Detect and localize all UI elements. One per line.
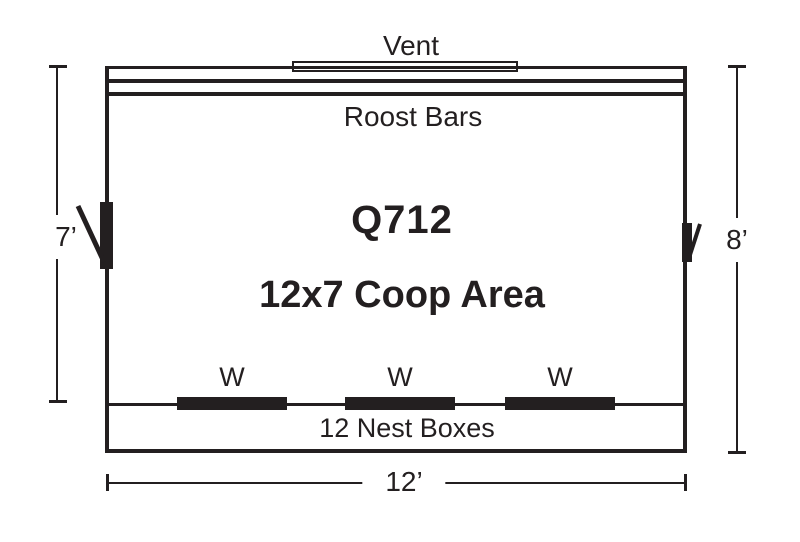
model-title: Q712	[351, 200, 453, 240]
wall-bottom	[105, 449, 687, 453]
coop-area-subtitle: 12x7 Coop Area	[259, 276, 545, 314]
roost-bars-label: Roost Bars	[344, 103, 483, 131]
window-label-2: W	[387, 364, 412, 391]
wall-left	[105, 66, 109, 453]
right-door-swing-line	[688, 224, 700, 261]
window-label-3: W	[547, 364, 572, 391]
window-label-1: W	[219, 364, 244, 391]
vent-label: Vent	[383, 32, 439, 60]
roost-bar-line-2	[109, 92, 683, 96]
right-dimension-tick-top	[728, 65, 746, 68]
bottom-dimension-label: 12’	[362, 467, 445, 497]
coop-floor-plan: 7’ 8’ 12’ Vent Roost Bars Q712 12x7 Coop…	[0, 0, 800, 542]
right-dimension-label: 8’	[723, 218, 751, 262]
left-dimension-label: 7’	[52, 215, 80, 259]
right-dimension-tick-bottom	[728, 451, 746, 454]
bottom-dimension-tick-left	[106, 474, 109, 491]
window-bar-1	[177, 397, 287, 410]
left-door-swing-line	[78, 206, 104, 262]
bottom-dimension-tick-right	[684, 474, 687, 491]
nest-boxes-label: 12 Nest Boxes	[319, 415, 495, 442]
window-bar-2	[345, 397, 455, 410]
left-dimension-tick-top	[49, 65, 67, 68]
roost-bar-line-1	[109, 79, 683, 83]
wall-right	[683, 66, 687, 453]
vent-rect	[292, 61, 518, 72]
left-dimension-tick-bottom	[49, 400, 67, 403]
window-bar-3	[505, 397, 615, 410]
